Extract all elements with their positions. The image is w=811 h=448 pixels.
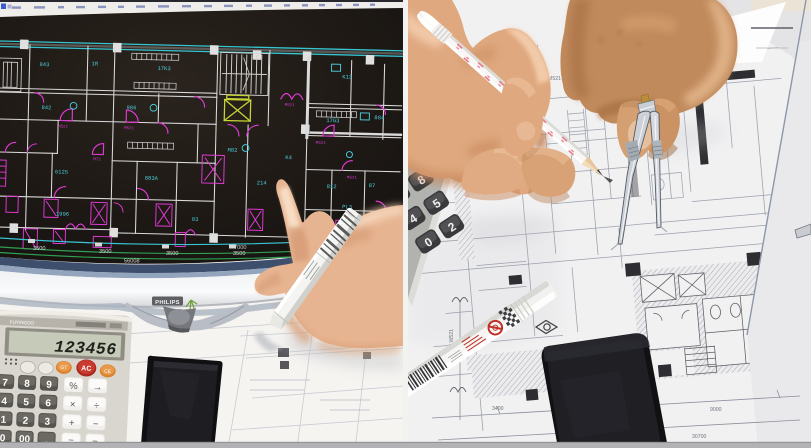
svg-text:883A: 883A bbox=[145, 175, 159, 182]
svg-text:17K3: 17K3 bbox=[157, 65, 170, 72]
svg-text:9000: 9000 bbox=[710, 407, 722, 413]
svg-text:7: 7 bbox=[2, 378, 8, 389]
svg-text:843: 843 bbox=[39, 61, 49, 68]
svg-text:9: 9 bbox=[46, 380, 52, 391]
svg-text:AC: AC bbox=[81, 365, 91, 372]
svg-text:M521: M521 bbox=[347, 177, 358, 181]
svg-text:123456: 123456 bbox=[54, 338, 117, 360]
svg-text:1996: 1996 bbox=[56, 210, 69, 217]
svg-text:3500: 3500 bbox=[233, 251, 245, 257]
svg-text:884: 884 bbox=[374, 114, 385, 121]
svg-text:1: 1 bbox=[0, 415, 6, 426]
svg-text:3500: 3500 bbox=[166, 251, 178, 257]
svg-text:M521: M521 bbox=[58, 125, 69, 129]
svg-text:17G3: 17G3 bbox=[326, 117, 339, 124]
svg-text:30700: 30700 bbox=[692, 434, 707, 440]
svg-text:3500: 3500 bbox=[33, 246, 45, 252]
svg-text:CE: CE bbox=[104, 369, 112, 375]
svg-text:M82: M82 bbox=[227, 147, 237, 154]
svg-text:3400: 3400 bbox=[492, 406, 504, 412]
svg-text:M521: M521 bbox=[285, 104, 296, 108]
svg-text:6: 6 bbox=[45, 398, 51, 409]
svg-text:−: − bbox=[93, 419, 99, 430]
svg-text:7000: 7000 bbox=[234, 245, 246, 251]
svg-text:83: 83 bbox=[192, 216, 199, 223]
svg-text:6125: 6125 bbox=[55, 168, 68, 175]
svg-text:56008: 56008 bbox=[124, 259, 140, 265]
svg-text:÷: ÷ bbox=[94, 400, 100, 411]
svg-text:M521: M521 bbox=[124, 127, 135, 131]
svg-text:986: 986 bbox=[126, 104, 136, 111]
svg-text:M521: M521 bbox=[316, 142, 327, 146]
svg-text:GT: GT bbox=[60, 365, 67, 371]
svg-text:PHILIPS: PHILIPS bbox=[155, 300, 180, 306]
svg-text:2: 2 bbox=[22, 416, 28, 427]
svg-text:3500: 3500 bbox=[99, 249, 111, 255]
svg-text:×: × bbox=[70, 399, 76, 410]
svg-text:1R: 1R bbox=[91, 60, 98, 67]
svg-text:+: + bbox=[69, 418, 75, 429]
svg-text:M72: M72 bbox=[93, 158, 101, 162]
svg-text:8: 8 bbox=[24, 379, 30, 390]
svg-text:214: 214 bbox=[257, 179, 268, 186]
svg-text:3: 3 bbox=[44, 417, 50, 428]
svg-text:842: 842 bbox=[41, 104, 51, 111]
svg-text:→: → bbox=[92, 382, 102, 393]
svg-text:87: 87 bbox=[369, 182, 376, 189]
svg-text:K13: K13 bbox=[342, 73, 352, 80]
svg-text:812: 812 bbox=[327, 183, 337, 190]
svg-text:4: 4 bbox=[1, 396, 7, 407]
svg-text:K4: K4 bbox=[285, 154, 292, 161]
svg-text:%: % bbox=[69, 381, 78, 392]
svg-text:5: 5 bbox=[23, 397, 29, 408]
